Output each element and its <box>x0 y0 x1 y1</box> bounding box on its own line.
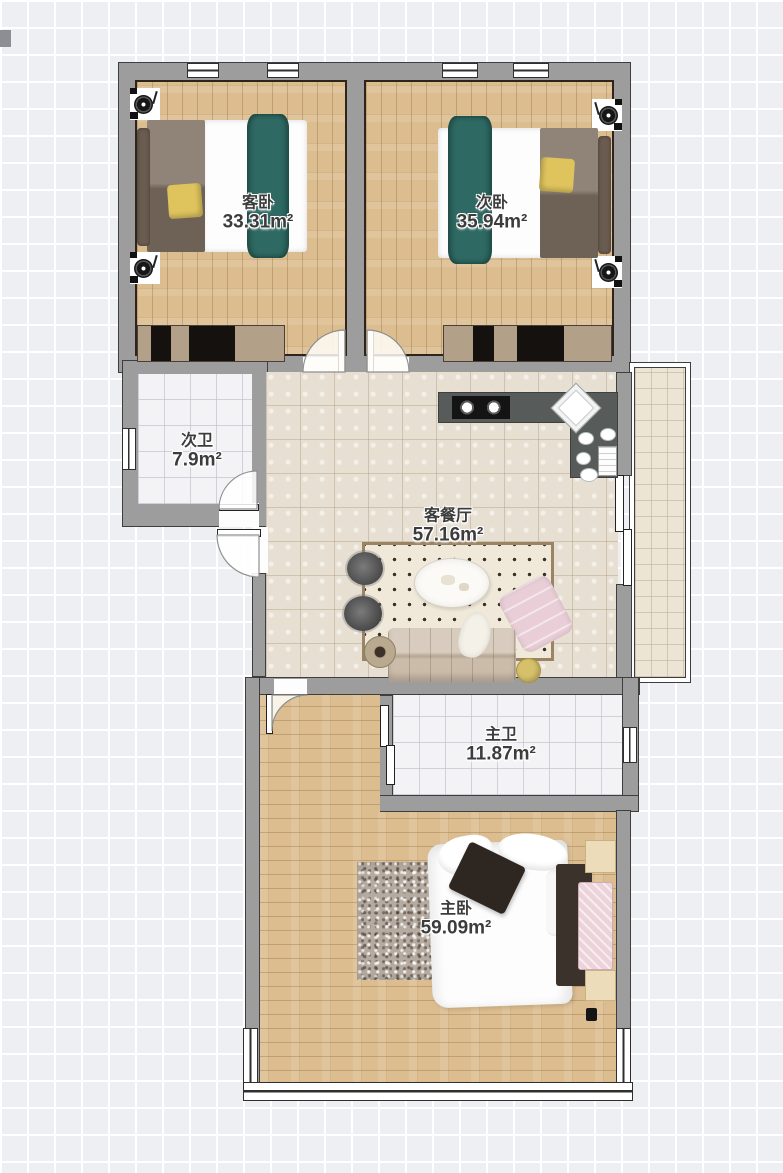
pouf-icon[interactable] <box>516 658 541 683</box>
balcony-wall-upper <box>616 372 632 476</box>
sliding-door-leaf[interactable] <box>623 529 632 586</box>
sliding-door-leaf[interactable] <box>380 705 389 747</box>
window-icon[interactable] <box>442 63 478 78</box>
door-swing-icon[interactable] <box>302 329 346 373</box>
door-swing-icon[interactable] <box>218 470 258 510</box>
room-area: 35.94m² <box>457 213 528 234</box>
balcony-enclosure <box>629 362 691 683</box>
turntable-icon[interactable] <box>130 88 160 120</box>
room-name: 客餐厅 <box>413 507 484 525</box>
window-icon[interactable] <box>623 727 637 763</box>
window-icon[interactable] <box>243 1028 258 1085</box>
room-label-master-bath: 主卫 11.87m² <box>466 726 536 765</box>
window-icon[interactable] <box>243 1082 633 1101</box>
master-bath-bottom-wall <box>378 795 639 812</box>
room-label-second-bath: 次卫 7.9m² <box>172 432 222 471</box>
window-icon[interactable] <box>267 63 299 78</box>
plate-icon[interactable] <box>578 432 594 445</box>
floor-plan: 客卧 33.31m² 次卧 35.94m² 次卫 7.9m² 客餐厅 57.16… <box>0 0 783 1173</box>
nightstand-icon[interactable] <box>585 970 616 1001</box>
door-swing-icon[interactable] <box>271 694 309 732</box>
room-name: 次卧 <box>457 194 528 212</box>
screen-edge-artifact <box>0 30 11 47</box>
appliance-icon[interactable] <box>598 446 617 476</box>
room-name: 客卧 <box>223 194 294 212</box>
door-swing-icon[interactable] <box>216 534 260 578</box>
room-name: 主卫 <box>466 726 536 744</box>
room-label-living-dining: 客餐厅 57.16m² <box>413 507 484 546</box>
living-left-wall <box>252 573 266 677</box>
stove-icon[interactable] <box>452 396 510 419</box>
sofa-icon[interactable] <box>388 628 516 682</box>
turntable-icon[interactable] <box>130 252 160 284</box>
armchair-icon[interactable] <box>347 552 383 585</box>
coffee-table-icon[interactable] <box>414 558 490 608</box>
room-area: 33.31m² <box>223 213 294 234</box>
sliding-door-leaf[interactable] <box>386 745 395 785</box>
master-left-wall <box>245 677 260 1085</box>
bed-icon[interactable] <box>430 122 612 262</box>
plate-icon[interactable] <box>580 468 598 482</box>
lamp-icon[interactable] <box>586 1008 597 1021</box>
room-area: 57.16m² <box>413 526 484 547</box>
window-icon[interactable] <box>122 428 136 470</box>
armchair-icon[interactable] <box>344 596 382 631</box>
room-area: 7.9m² <box>172 451 222 472</box>
pouf-icon[interactable] <box>364 636 396 668</box>
balcony-floor[interactable] <box>634 367 686 678</box>
plate-icon[interactable] <box>576 452 591 465</box>
door-opening <box>274 679 307 694</box>
plate-icon[interactable] <box>600 428 616 441</box>
room-area: 11.87m² <box>466 745 536 766</box>
room-label-master-bedroom: 主卧 59.09m² <box>421 900 492 939</box>
nightstand-icon[interactable] <box>585 840 616 873</box>
room-label-second-bedroom: 次卧 35.94m² <box>457 194 528 233</box>
room-name: 次卫 <box>172 432 222 450</box>
wardrobe-icon[interactable] <box>443 325 612 362</box>
window-icon[interactable] <box>513 63 549 78</box>
window-icon[interactable] <box>616 1028 631 1085</box>
sliding-door-leaf[interactable] <box>615 475 624 532</box>
window-icon[interactable] <box>187 63 219 78</box>
room-label-guest-bedroom: 客卧 33.31m² <box>223 194 294 233</box>
room-name: 主卧 <box>421 900 492 918</box>
balcony-wall-lower <box>616 584 632 683</box>
room-area: 59.09m² <box>421 919 492 940</box>
door-swing-icon[interactable] <box>366 329 410 373</box>
wardrobe-icon[interactable] <box>137 325 285 362</box>
